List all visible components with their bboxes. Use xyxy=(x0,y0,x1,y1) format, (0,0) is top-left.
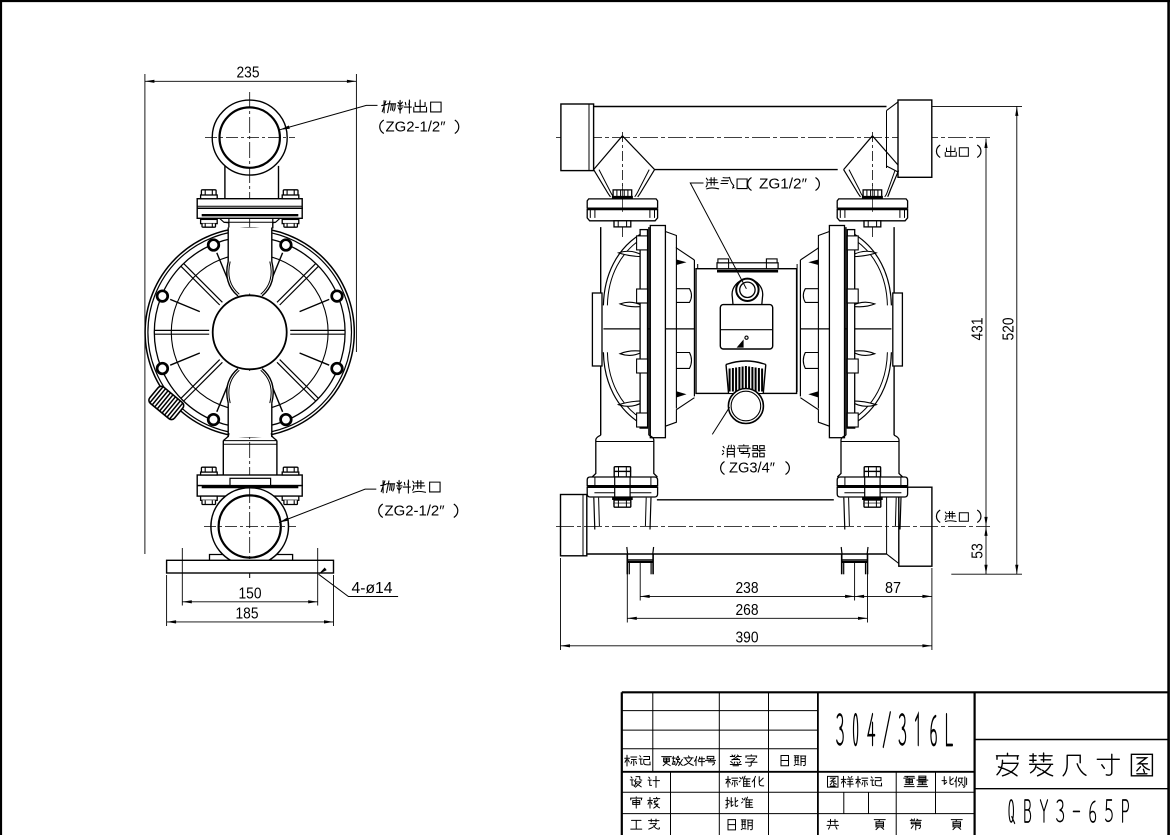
svg-text:268: 268 xyxy=(736,602,759,619)
svg-text:520: 520 xyxy=(1000,317,1017,340)
svg-text:4-ø14: 4-ø14 xyxy=(352,580,393,597)
svg-text:238: 238 xyxy=(736,580,759,597)
svg-text:ZG2-1/2″: ZG2-1/2″ xyxy=(386,119,447,136)
svg-text:235: 235 xyxy=(237,65,260,82)
svg-text:87: 87 xyxy=(885,580,901,597)
svg-text:390: 390 xyxy=(736,629,759,646)
svg-text:431: 431 xyxy=(970,317,987,340)
svg-text:ZG3/4″: ZG3/4″ xyxy=(729,461,775,477)
svg-text:53: 53 xyxy=(970,543,987,559)
svg-text:150: 150 xyxy=(239,585,262,602)
svg-text:185: 185 xyxy=(236,605,259,622)
svg-text:ZG2-1/2″: ZG2-1/2″ xyxy=(385,503,446,520)
svg-text:ZG1/2″: ZG1/2″ xyxy=(759,177,807,193)
